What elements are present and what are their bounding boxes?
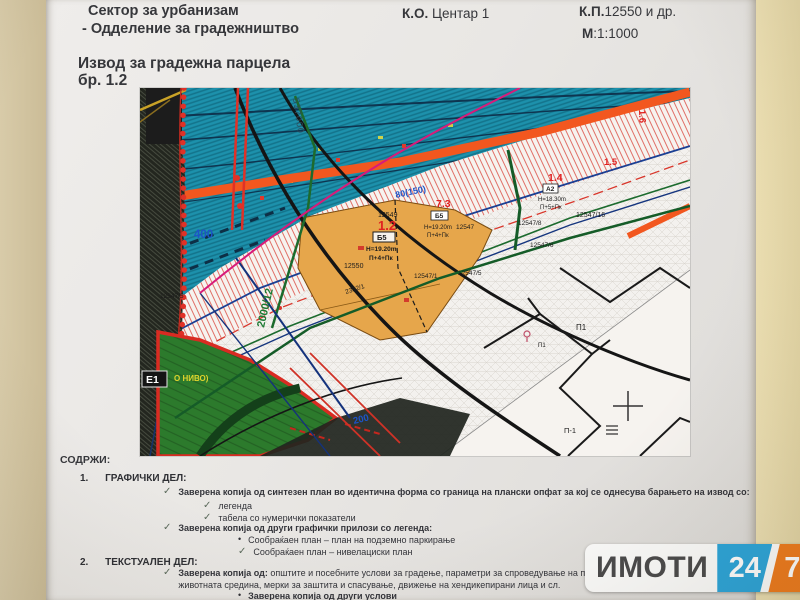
- section-textual-part: 2. ТЕКСТУАЛЕН ДЕЛ:: [80, 557, 198, 568]
- svg-text:H=19.20m: H=19.20m: [424, 225, 452, 231]
- svg-text:П+4+Пк: П+4+Пк: [427, 233, 449, 239]
- svg-text:12550: 12550: [344, 263, 364, 270]
- kp-value: 12550 и др.: [604, 4, 676, 19]
- list-item-text: Сообраќаен план – план на подземно парки…: [248, 535, 455, 545]
- list-item-text: Заверена копија од синтезен план во иден…: [178, 487, 749, 497]
- ko-value: Центар 1: [428, 6, 489, 21]
- checkmark-icon: ✓: [238, 547, 246, 556]
- list-item: ✓ Сообраќаен план – нивелациски план: [238, 547, 412, 557]
- svg-text:Б5: Б5: [435, 213, 444, 220]
- sector-line: Сектор за урбанизам: [88, 3, 239, 19]
- svg-text:1.4: 1.4: [548, 172, 563, 184]
- list-item-text: табела со нумерички показатели: [218, 513, 355, 523]
- checkmark-icon: ✓: [163, 523, 171, 532]
- scale-value: :1:1000: [593, 26, 638, 41]
- bullet-icon: •: [238, 535, 241, 544]
- document-title-number: бр. 1.2: [78, 72, 127, 90]
- svg-text:П+5+Пк: П+5+Пк: [540, 205, 562, 211]
- section-graphic-part: 1. ГРАФИЧКИ ДЕЛ:: [80, 473, 187, 484]
- checkmark-icon: ✓: [203, 513, 211, 522]
- watermark-7-badge: 7: [766, 544, 800, 592]
- svg-text:H=18.30m: H=18.30m: [538, 197, 566, 203]
- photographed-document: Сектор за урбанизам - Одделение за граде…: [0, 0, 800, 600]
- checkmark-icon: ✓: [163, 487, 171, 496]
- svg-text:12547: 12547: [456, 224, 474, 231]
- list-item: • Заверена копија од други услови: [238, 591, 397, 600]
- svg-text:П-1: П-1: [564, 426, 576, 435]
- scale-label: М: [582, 26, 593, 41]
- cadastral-map-svg: 537000 80(150) 400 200 2000/12 1.2 7.3 1…: [140, 88, 690, 456]
- bullet-icon: •: [238, 591, 241, 600]
- svg-text:7.3: 7.3: [436, 198, 451, 210]
- list-item: ✓ Заверена копија од други графички прил…: [163, 523, 432, 533]
- svg-text:1.5: 1.5: [604, 157, 618, 168]
- section-number: 2.: [80, 557, 88, 568]
- list-item: ✓ легенда: [203, 501, 252, 511]
- svg-text:12549: 12549: [378, 212, 398, 219]
- svg-text:П1: П1: [538, 343, 546, 349]
- cadastral-map: 537000 80(150) 400 200 2000/12 1.2 7.3 1…: [140, 88, 690, 456]
- map-scale: М:1:1000: [582, 26, 638, 41]
- list-item-text: Сообраќаен план – нивелациски план: [253, 547, 412, 557]
- list-item-text: Заверена копија од други графички прилоз…: [178, 523, 432, 533]
- svg-text:12547/6: 12547/6: [530, 242, 554, 249]
- svg-text:1.2: 1.2: [378, 218, 396, 233]
- svg-text:12547/8: 12547/8: [518, 220, 542, 227]
- svg-text:H=19.20m: H=19.20m: [366, 246, 397, 253]
- svg-text:Е1: Е1: [146, 374, 159, 386]
- svg-text:1.6: 1.6: [636, 110, 647, 124]
- svg-text:12547/5: 12547/5: [458, 270, 482, 277]
- department-line: - Одделение за градежништво: [82, 21, 299, 37]
- section-title: ГРАФИЧКИ ДЕЛ:: [105, 473, 186, 484]
- watermark-brand-text: ИМОТИ: [585, 544, 717, 592]
- list-item-text: легенда: [218, 501, 252, 511]
- svg-text:Б5: Б5: [377, 233, 387, 242]
- ko-label: К.О.: [402, 6, 428, 21]
- checkmark-icon: ✓: [163, 568, 171, 577]
- imoti247-watermark: ИМОТИ 24 7: [585, 544, 800, 592]
- section-title: ТЕКСТУАЛЕН ДЕЛ:: [105, 557, 197, 568]
- section-number: 1.: [80, 473, 88, 484]
- svg-text:О НИВО): О НИВО): [174, 374, 209, 383]
- checkmark-icon: ✓: [203, 501, 211, 510]
- svg-text:А2: А2: [546, 186, 555, 193]
- svg-text:12547/5: 12547/5: [160, 293, 184, 300]
- svg-text:П1: П1: [576, 323, 587, 332]
- contents-heading: СОДРЖИ:: [60, 454, 110, 466]
- background-wall-right: [756, 0, 800, 600]
- kp-label: К.П.: [579, 4, 604, 19]
- list-item: ✓ табела со нумерички показатели: [203, 513, 356, 523]
- cadastral-parcel: К.П.12550 и др.: [579, 4, 676, 19]
- document-title: Извод за градежна парцела: [78, 55, 290, 73]
- list-item-text: Заверена копија од други услови: [248, 591, 397, 600]
- background-wall-left: [0, 0, 46, 600]
- svg-text:П+4+Пк: П+4+Пк: [369, 255, 394, 262]
- svg-text:12547/1: 12547/1: [414, 273, 438, 280]
- svg-text:12547/16: 12547/16: [576, 212, 605, 219]
- watermark-24-badge: 24: [717, 544, 772, 592]
- list-item: ✓ Заверена копија од синтезен план во ид…: [163, 487, 750, 497]
- list-item: • Сообраќаен план – план на подземно пар…: [238, 535, 455, 545]
- list-item-lead: Заверена копија од:: [178, 568, 267, 578]
- cadastral-municipality: К.О. Центар 1: [402, 6, 489, 21]
- svg-text:400: 400: [194, 229, 213, 241]
